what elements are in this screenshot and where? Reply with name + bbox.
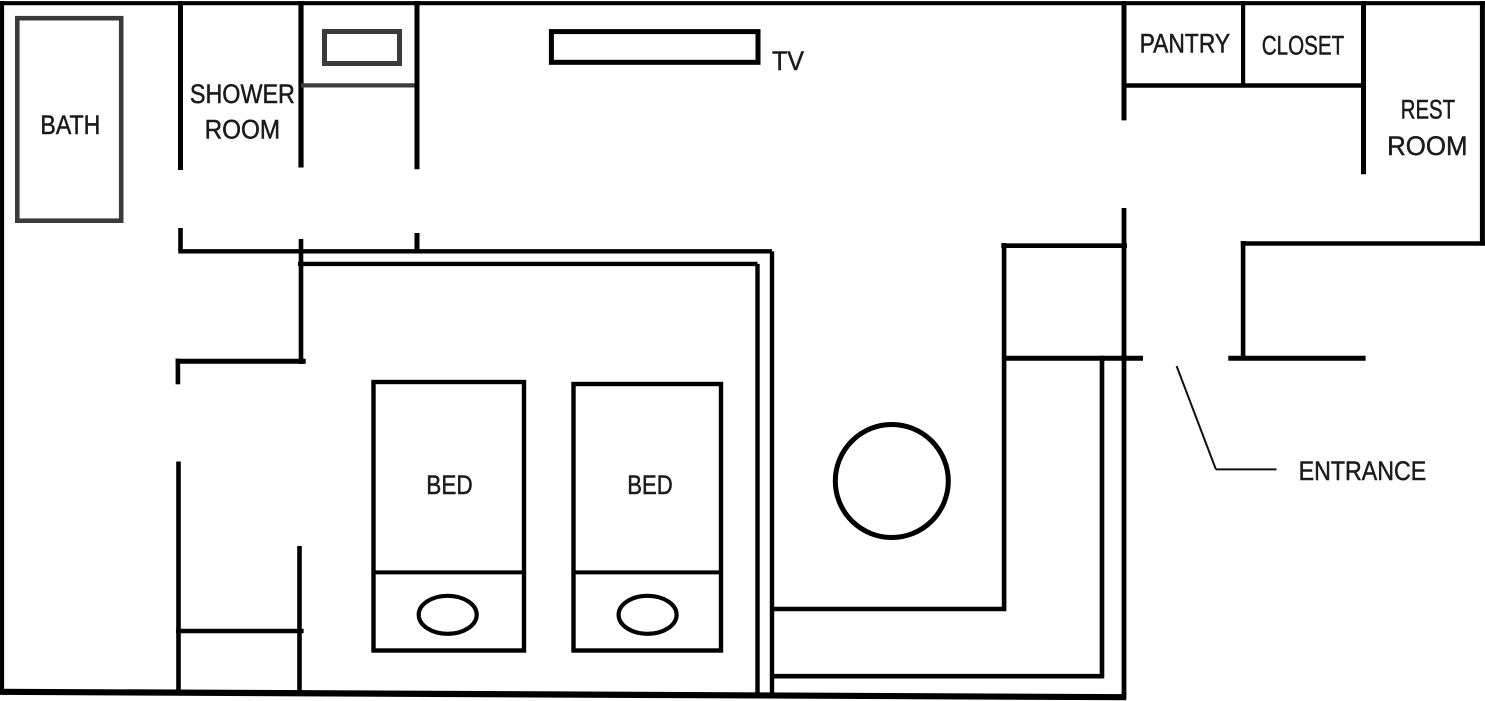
svg-text:ROOM: ROOM [1387, 131, 1467, 161]
svg-text:SHOWER: SHOWER [190, 79, 295, 109]
svg-text:CLOSET: CLOSET [1262, 31, 1345, 61]
svg-text:BATH: BATH [40, 110, 100, 140]
svg-text:ENTRANCE: ENTRANCE [1299, 456, 1427, 486]
svg-text:BED: BED [627, 470, 672, 500]
svg-text:ROOM: ROOM [205, 115, 281, 145]
svg-text:TV: TV [772, 46, 804, 76]
svg-text:BED: BED [426, 470, 472, 500]
svg-text:REST: REST [1401, 95, 1455, 125]
svg-text:PANTRY: PANTRY [1140, 29, 1231, 59]
